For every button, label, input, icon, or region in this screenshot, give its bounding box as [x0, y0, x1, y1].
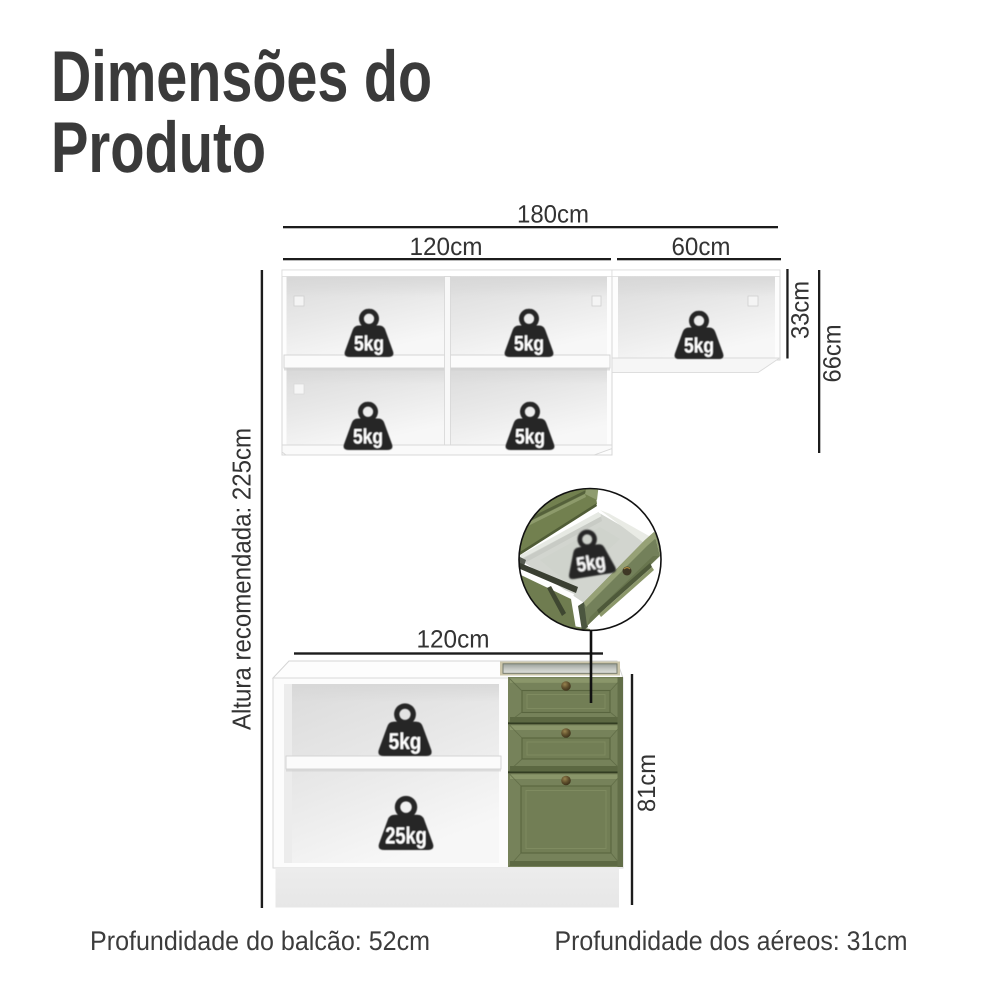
svg-text:Profundidade do balcão: 52cm: Profundidade do balcão: 52cm: [90, 926, 430, 956]
svg-text:5kg: 5kg: [684, 335, 714, 358]
svg-text:120cm: 120cm: [417, 626, 490, 654]
svg-text:Dimensões do: Dimensões do: [51, 37, 432, 117]
svg-text:5kg: 5kg: [575, 550, 607, 577]
svg-text:60cm: 60cm: [672, 233, 731, 261]
svg-text:33cm: 33cm: [787, 281, 815, 339]
svg-text:Altura recomendada: 225cm: Altura recomendada: 225cm: [227, 428, 257, 730]
svg-text:Profundidade dos aéreos: 31cm: Profundidade dos aéreos: 31cm: [555, 926, 908, 956]
svg-text:5kg: 5kg: [354, 333, 384, 356]
svg-text:66cm: 66cm: [819, 325, 847, 383]
svg-text:5kg: 5kg: [514, 333, 544, 356]
svg-text:5kg: 5kg: [389, 729, 422, 754]
svg-text:Produto: Produto: [51, 108, 266, 188]
svg-text:25kg: 25kg: [385, 823, 426, 849]
svg-text:180cm: 180cm: [517, 201, 589, 229]
svg-text:120cm: 120cm: [410, 233, 483, 261]
svg-text:5kg: 5kg: [353, 426, 383, 449]
svg-text:81cm: 81cm: [633, 754, 661, 812]
svg-text:5kg: 5kg: [515, 426, 545, 449]
